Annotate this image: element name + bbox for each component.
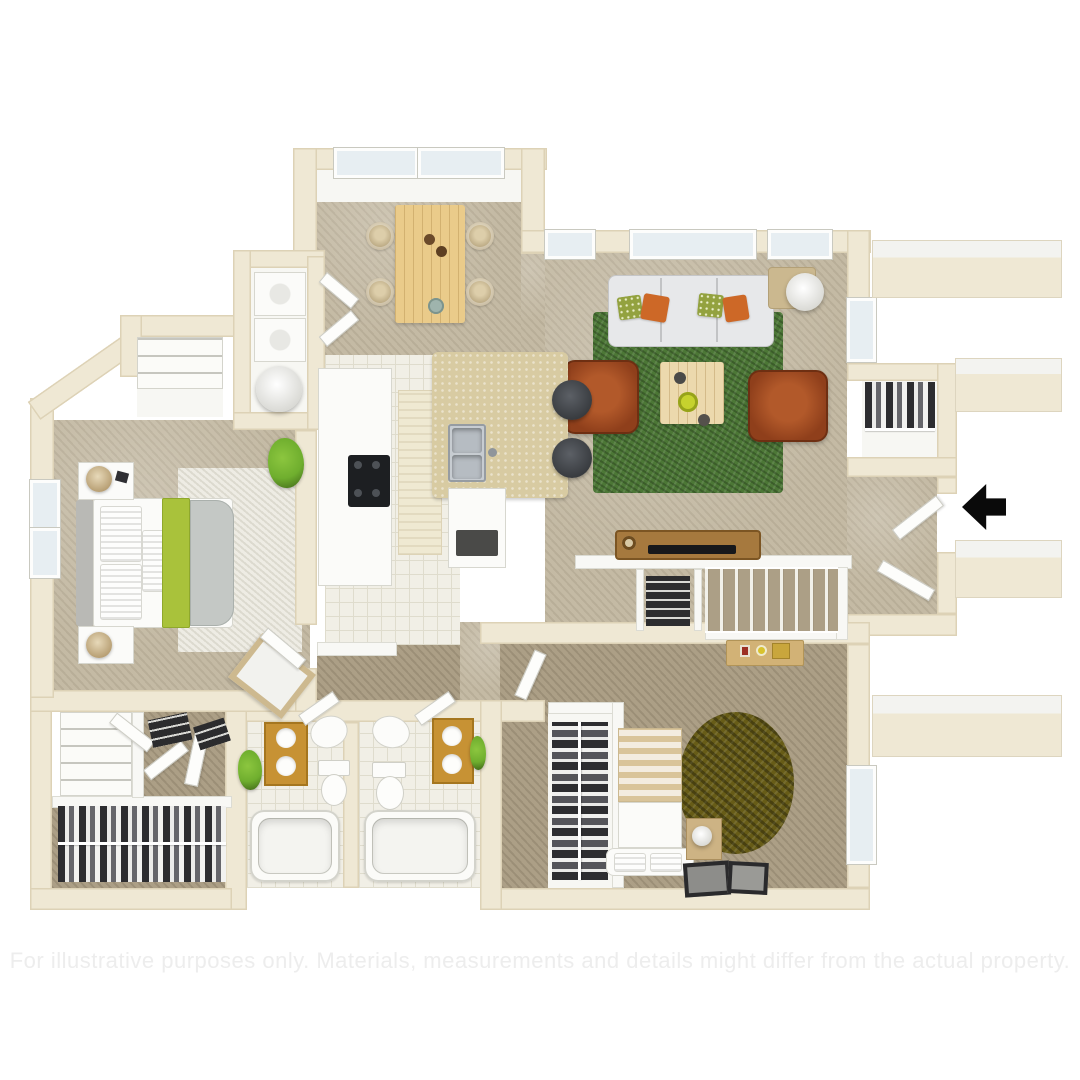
dining-bowl-2: [436, 246, 447, 257]
sofa-pillow-green-2: [697, 293, 724, 318]
master-lamp-top: [86, 466, 112, 492]
hall-folded-linens: [646, 576, 690, 626]
washer: [254, 272, 306, 316]
master-bed-gray-blanket: [190, 500, 234, 626]
range-burner-4: [372, 489, 380, 497]
dryer: [254, 318, 306, 362]
living-window-small: [545, 230, 595, 259]
wall-laundry-left: [233, 250, 251, 430]
living-window-wide: [630, 230, 756, 259]
hall-linen-box-right: [694, 569, 702, 631]
coat-closet-rod: [865, 428, 935, 431]
dining-chair-1: [366, 222, 394, 250]
patio-ledge-mid-right: [955, 540, 1062, 598]
desk-item-red: [740, 645, 750, 657]
coffee-table-item-dark-2: [698, 414, 710, 426]
bar-stool-2: [552, 438, 592, 478]
wall-entry-sill: [847, 457, 957, 477]
dining-chair-2: [366, 278, 394, 306]
bedroom2-window: [847, 766, 876, 864]
wall-bath-divider: [343, 722, 359, 888]
bedroom2-closet-rod: [578, 722, 581, 880]
bedroom2-bed-striped: [618, 728, 682, 802]
coffee-table-item-dark-1: [674, 372, 686, 384]
patio-ledge-upper-right: [955, 358, 1062, 412]
range-burner-1: [354, 461, 362, 469]
wall-bath-right: [480, 700, 502, 910]
wall-entry-jamb-bottom: [937, 552, 957, 614]
living-window-right: [768, 230, 832, 259]
staircase: [705, 567, 838, 633]
console-knob: [622, 536, 636, 550]
bath2-tub-basin: [372, 818, 468, 874]
closet-shadow-strip: [502, 700, 548, 888]
sink-basin-2: [452, 455, 482, 479]
coat-closet-clothes: [865, 382, 935, 428]
dining-chair-4: [466, 278, 494, 306]
master-pillow-2: [100, 564, 142, 620]
master-lamp-bottom: [86, 632, 112, 658]
bath2-sink-1: [442, 726, 462, 746]
living-floor-lamp: [786, 273, 824, 311]
hall-linen-box-left: [636, 569, 644, 631]
bedroom2-bed-lower: [618, 802, 682, 848]
bar-stool-1: [552, 380, 592, 420]
wall-entry-jamb-top: [937, 477, 957, 494]
armchair-right: [748, 370, 828, 442]
entry-arrow-icon: [962, 483, 1006, 531]
bath1-tub-basin: [258, 818, 332, 874]
sink-faucet: [488, 448, 497, 457]
skylight-window-2: [418, 148, 504, 178]
bath1-plant: [238, 750, 262, 790]
water-heater: [256, 366, 302, 412]
shelf-closet-shelving: [137, 337, 223, 389]
coffee-table-plate: [678, 392, 698, 412]
wall-outer-left-bottom: [30, 690, 52, 910]
bath1-toilet-bowl: [321, 774, 347, 806]
wall-bottom-left: [30, 888, 232, 910]
master-window-2: [30, 528, 60, 578]
kitchen-lower-cabinet: [448, 488, 506, 568]
patio-ledge-bottom-right: [872, 695, 1062, 757]
sofa-pillow-orange-2: [722, 294, 750, 322]
bath1-sink-2: [276, 756, 296, 776]
desk-item-gold: [772, 643, 790, 659]
kitchen-hall-stub: [317, 642, 397, 656]
dining-bowl-1: [424, 234, 435, 245]
dining-chair-3: [466, 222, 494, 250]
living-sidewall-window: [847, 298, 876, 362]
master-pillow-1: [100, 506, 142, 562]
bedroom2-lamp: [692, 826, 712, 846]
range-burner-2: [372, 461, 380, 469]
patio-ledge-top: [872, 240, 1062, 298]
sink-basin-1: [452, 428, 482, 453]
master-bed-lime-runner: [162, 498, 190, 628]
sofa-pillow-orange-1: [640, 293, 670, 323]
floor-plan-canvas: For illustrative purposes only. Material…: [0, 0, 1080, 1080]
tv-on-console: [648, 545, 736, 554]
bedroom2-pillow-1: [614, 853, 646, 872]
disclaimer-text: For illustrative purposes only. Material…: [0, 948, 1080, 974]
picture-frame-1: [683, 860, 731, 897]
master-headboard: [76, 500, 94, 626]
desk-item-yellow: [756, 645, 767, 656]
picture-frame-2: [727, 861, 769, 895]
master-plant: [268, 438, 304, 488]
bath2-toilet-bowl: [376, 776, 404, 810]
master-window-1: [30, 480, 60, 530]
bath1-sink-1: [276, 728, 296, 748]
walkin-closet-rod: [58, 842, 226, 845]
dining-vase: [428, 298, 444, 314]
cabinet-open-niche: [456, 530, 498, 556]
skylight-window-1: [334, 148, 418, 178]
bath2-sink-2: [442, 754, 462, 774]
bedroom2-pillow-2: [650, 853, 682, 872]
range-burner-3: [354, 489, 362, 497]
wall-dining-left: [293, 148, 317, 256]
wall-bedroom2-bottom: [480, 888, 870, 910]
bath2-plant: [470, 736, 486, 770]
